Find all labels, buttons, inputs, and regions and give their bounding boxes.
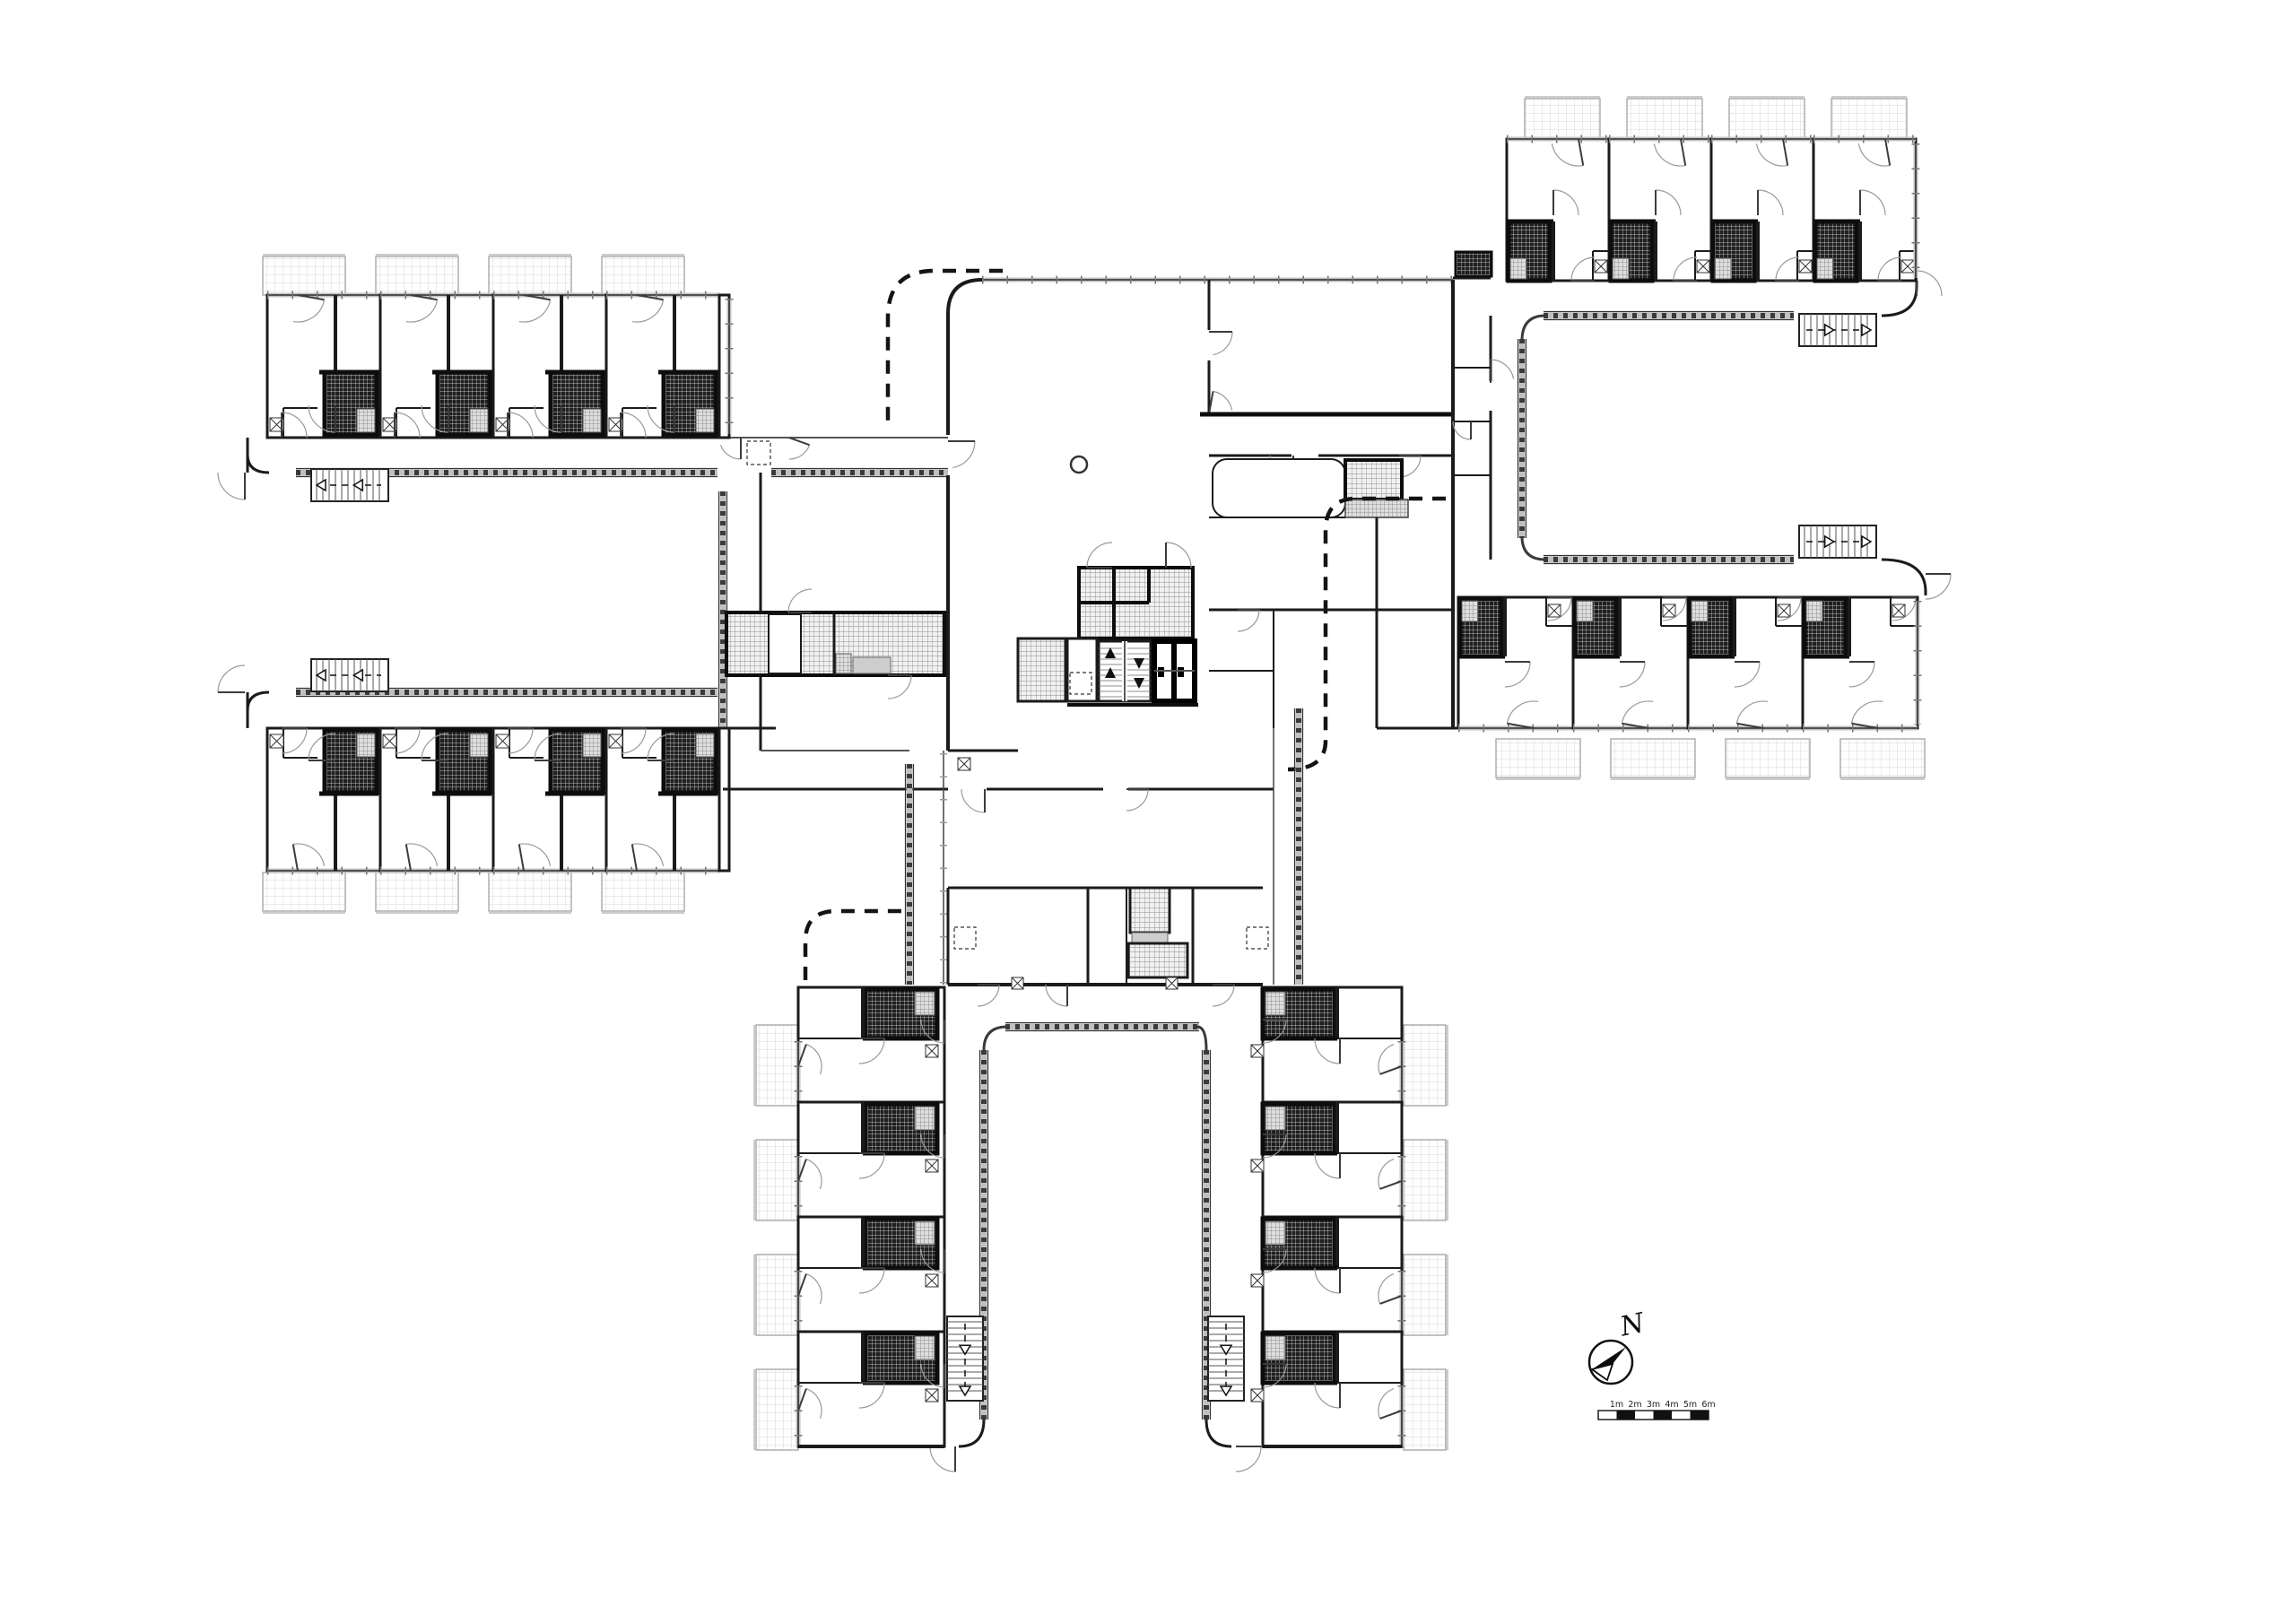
core-stair [1099,641,1151,701]
corridor-east-west [723,751,1274,812]
gallery-west [906,751,944,985]
door [218,665,245,692]
balcony-column-right [1404,1025,1448,1450]
service-block-west [726,589,944,699]
unit-row-top [1507,139,1916,281]
north-arrow-icon: N [1589,1307,1648,1384]
corridor [1491,271,1951,599]
south-block-north-band [948,888,1268,1006]
stair-east-top [1799,314,1876,346]
balcony-row-bottom [1496,739,1925,779]
corridor-door [720,438,809,465]
unit-column-left [798,987,944,1446]
unit-row-top [267,295,729,438]
corridor [930,1023,1261,1472]
scale-label: 1m [1610,1400,1623,1410]
balcony-row-top [263,255,684,295]
wing-top-right [1453,97,1951,779]
wing-top-left [218,255,948,913]
scale-bar: 1m2m3m4m5m6m [1598,1400,1716,1420]
floor-plan-page: N1m2m3m4m5m6m [0,0,2296,1624]
stair-south-right [1208,1316,1244,1401]
scale-label: 6m [1701,1400,1715,1410]
unit-row-bottom [267,728,729,871]
unit-row-bottom [1458,597,1918,728]
stair-south-left [947,1316,983,1401]
hall-column [1071,456,1087,473]
balcony-row-bottom [263,873,684,913]
balcony-row-top [1525,97,1907,139]
scale-label: 4m [1665,1400,1678,1410]
central-block [723,271,1458,1006]
floor-plan-canvas: N1m2m3m4m5m6m [0,0,2296,1624]
stair-west-top [311,469,388,501]
gallery-east [1274,708,1303,985]
service-core [1018,543,1198,705]
compass-north-label: N [1617,1307,1649,1342]
service-column [1453,252,1492,475]
stair-east-bottom [1799,525,1876,558]
scale-label: 2m [1628,1400,1641,1410]
unit-column-right [1251,987,1402,1446]
door [218,473,245,499]
stair-west-bottom [311,659,388,691]
canopy-north-west [888,271,1003,421]
east-zone [1200,280,1458,728]
wing-bottom [754,987,1448,1472]
balcony-column-left [754,1025,798,1450]
canopy-south-west [805,911,908,980]
scale-label: 5m [1683,1400,1697,1410]
scale-label: 3m [1647,1400,1660,1410]
